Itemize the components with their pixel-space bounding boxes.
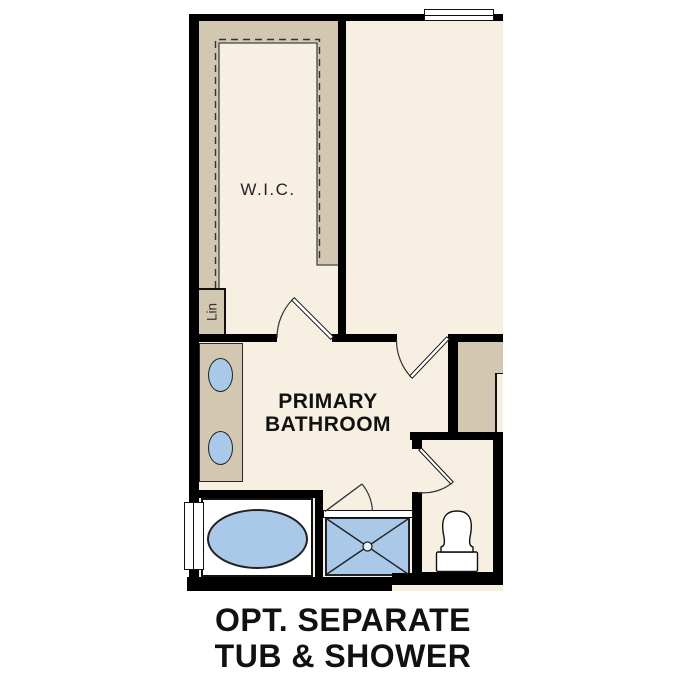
wic-shelf-left	[199, 43, 219, 288]
sink-top	[208, 358, 233, 392]
window-top	[424, 9, 494, 21]
wall-tub-top	[189, 490, 323, 498]
bathtub	[207, 509, 308, 569]
room-label-primary: PRIMARY	[252, 390, 404, 413]
window-top-mullion	[425, 15, 493, 16]
shower-glass	[323, 510, 413, 518]
wall-tub-shower-divider	[315, 490, 323, 591]
room-label-linen: Lin	[205, 303, 220, 321]
wall-wc-left	[412, 492, 422, 582]
wic-shelf-right	[317, 43, 338, 265]
wall-wc-bottom	[422, 572, 493, 582]
caption-line-2: TUB & SHOWER	[146, 638, 540, 674]
wall-wc-door-stub	[412, 440, 422, 449]
bedroom-closet-shelf-edge	[495, 373, 503, 432]
room-label-wic: W.I.C.	[219, 180, 317, 200]
window-left-mullion	[193, 503, 194, 569]
caption-line-1: OPT. SEPARATE	[146, 602, 540, 638]
wall-wc-top	[410, 432, 503, 440]
wic-shelf-top	[199, 21, 338, 43]
plan-caption: OPT. SEPARATE TUB & SHOWER	[146, 602, 540, 674]
wall-right	[493, 432, 503, 585]
wall-closet-left	[448, 334, 458, 432]
window-left	[184, 502, 204, 570]
shower-pan	[325, 517, 410, 576]
wall-bottom-left	[187, 577, 392, 591]
wall-wic-bedroom	[338, 21, 346, 342]
room-label-primary-bathroom: PRIMARY BATHROOM	[252, 390, 404, 436]
sink-bottom	[208, 431, 233, 465]
floor-plan: W.I.C. Lin PRIMARY BATHROOM OPT. SEPARAT…	[0, 0, 687, 687]
room-label-bathroom: BATHROOM	[252, 413, 404, 436]
wall-bath-top-2	[332, 334, 397, 342]
wall-bath-top-1	[199, 334, 277, 342]
